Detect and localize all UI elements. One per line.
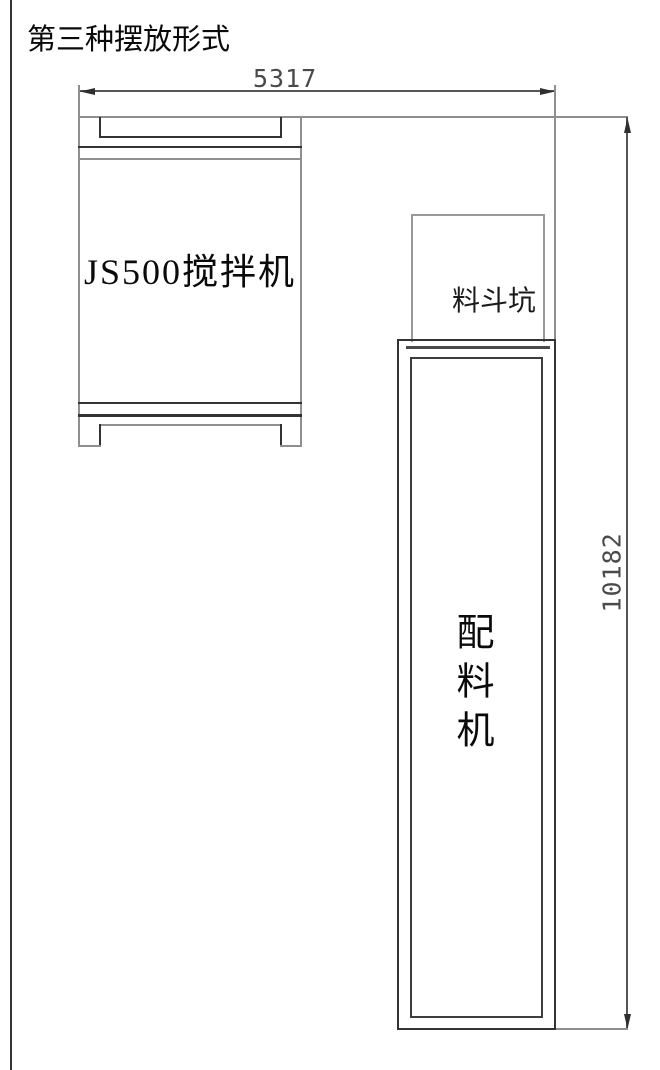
hopper-pit-label: 料斗坑 xyxy=(452,279,536,319)
mixer-top-notch-right xyxy=(280,117,282,138)
mixer-bottom-notch-right xyxy=(280,424,282,447)
mixer-top-rail-bottom xyxy=(78,146,302,148)
mixer-top-notch-left xyxy=(99,117,101,138)
dimension-width-value: 5317 xyxy=(253,64,315,93)
batcher-label: 配料机 xyxy=(451,612,491,759)
hopper-pit-box xyxy=(411,214,545,342)
dimension-width-line xyxy=(79,90,556,92)
mixer-left-leg-bottom xyxy=(78,445,101,447)
frame-left-border xyxy=(10,0,12,1070)
mixer-bottom-rail-top xyxy=(78,414,302,417)
top-boundary-line xyxy=(79,116,628,118)
mixer-body-bottom xyxy=(78,402,302,404)
mixer-bottom-notch-left xyxy=(99,424,101,447)
mixer-label: JS500搅拌机 xyxy=(80,243,300,295)
drawing-title: 第三种摆放形式 xyxy=(27,16,230,58)
mixer-right-leg-bottom xyxy=(280,445,302,447)
dimension-height-value: 10182 xyxy=(598,533,627,613)
mixer-bottom-notch-ceiling xyxy=(99,424,282,426)
cad-drawing-canvas: 第三种摆放形式 5317 JS500搅拌机 料斗坑 配料机 10182 xyxy=(0,0,660,1070)
mixer-body-top xyxy=(78,158,302,160)
mixer-right-edge xyxy=(300,116,302,447)
dimension-width-extension-right xyxy=(554,85,556,341)
dimension-height-extension-bottom xyxy=(556,1028,628,1030)
mixer-top-notch-floor xyxy=(99,136,282,138)
